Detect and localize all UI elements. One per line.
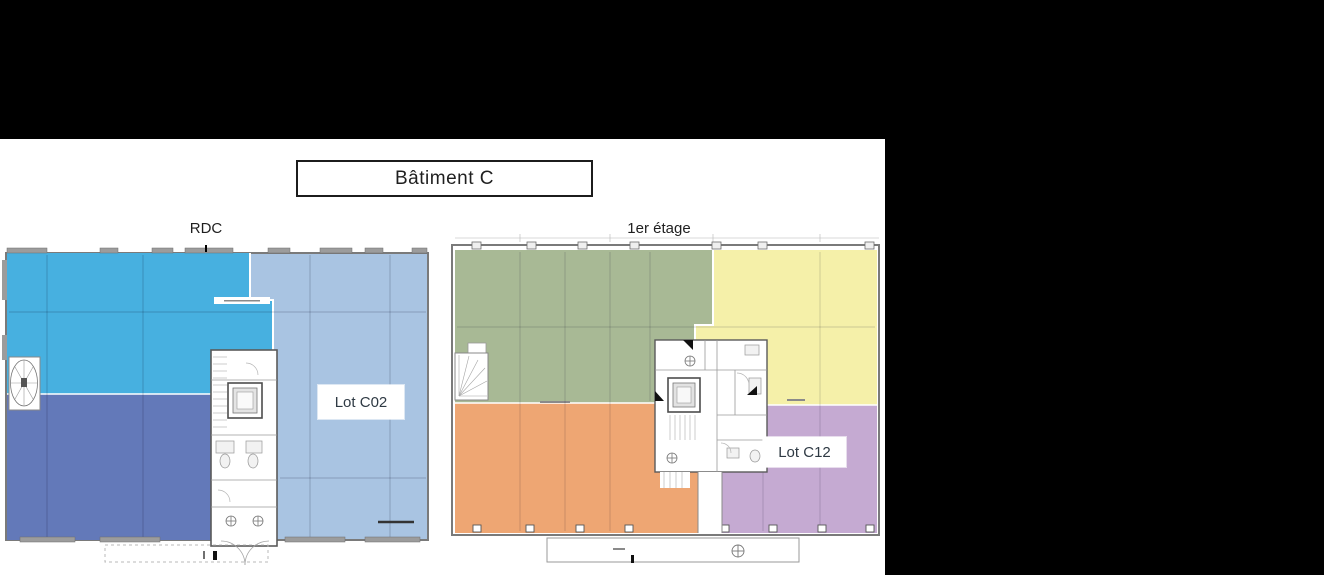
lot-c12-label: Lot C12 [778,444,831,461]
terrace-tick [631,555,634,563]
dimension-text [787,399,805,401]
entrance-tick [213,551,217,560]
screenshot-canvas: Bâtiment C RDC 1er étage [0,0,1324,575]
building-title: Bâtiment C [395,168,494,190]
terrace-label-text [613,548,625,550]
terrace [547,538,799,563]
dimension-text [224,300,260,302]
stair-landing [660,472,690,488]
entrance-canopy [105,541,269,565]
floor-label-rdc: RDC [160,220,252,237]
elevator [668,378,700,412]
zone-lower-left-unit [7,394,213,540]
elevator [228,383,262,418]
compass-cross-icon [732,545,744,557]
stair-elevator-core [211,350,277,546]
lot-c12-label-box: Lot C12 [763,437,846,467]
lot-c02-label-box: Lot C02 [318,385,404,419]
corridor [698,472,722,533]
etage1-floor-plan [445,215,885,565]
dimension-text [540,401,570,403]
spiral-staircase [9,357,40,410]
dimension-line [455,234,879,242]
lot-c02-label: Lot C02 [335,394,388,411]
building-title-box: Bâtiment C [296,160,593,197]
